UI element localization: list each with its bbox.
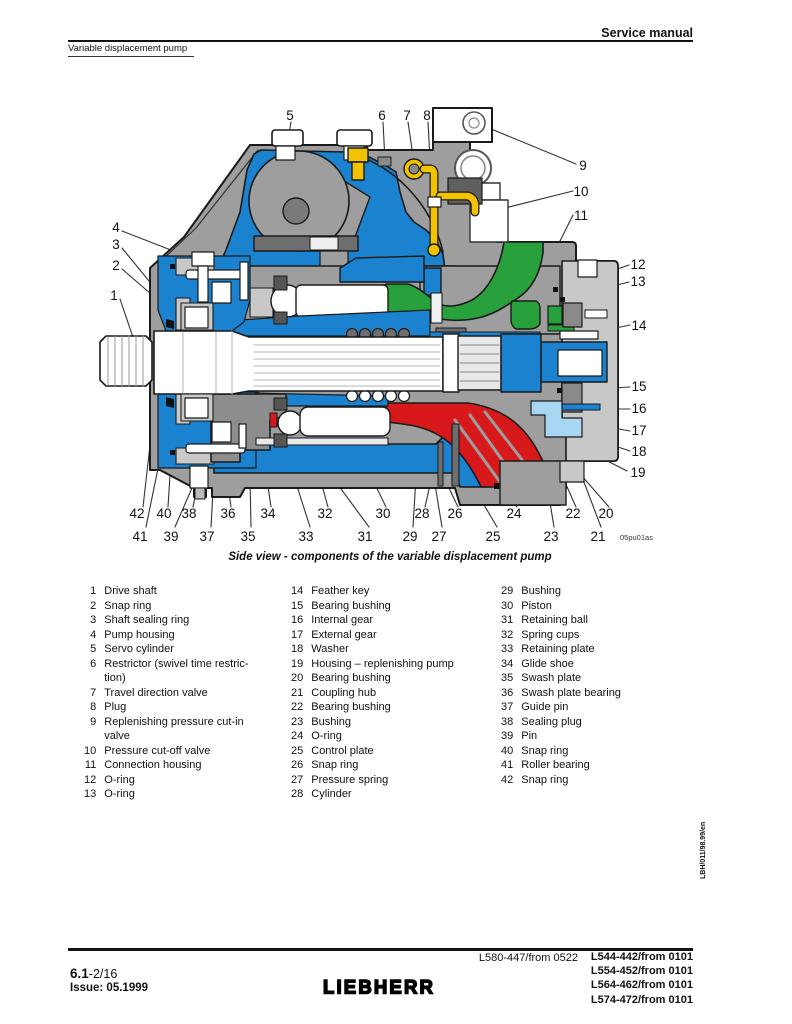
svg-text:8: 8 (423, 108, 431, 123)
svg-text:31: 31 (357, 529, 372, 544)
svg-text:33: 33 (298, 529, 313, 544)
svg-text:23: 23 (543, 529, 558, 544)
svg-text:1: 1 (110, 288, 118, 303)
svg-text:15: 15 (631, 379, 646, 394)
svg-text:32: 32 (317, 506, 332, 521)
svg-text:12: 12 (630, 257, 645, 272)
svg-text:17: 17 (631, 423, 646, 438)
svg-text:10: 10 (573, 184, 588, 199)
svg-text:05pu01as: 05pu01as (620, 533, 653, 542)
svg-text:25: 25 (485, 529, 500, 544)
svg-text:16: 16 (631, 401, 646, 416)
svg-text:40: 40 (156, 506, 171, 521)
svg-text:3: 3 (112, 237, 120, 252)
svg-text:9: 9 (579, 158, 587, 173)
svg-text:41: 41 (132, 529, 147, 544)
svg-text:6: 6 (378, 108, 386, 123)
svg-text:38: 38 (181, 506, 196, 521)
svg-text:18: 18 (631, 444, 646, 459)
svg-text:4: 4 (112, 220, 120, 235)
svg-text:13: 13 (630, 274, 645, 289)
svg-text:34: 34 (260, 506, 276, 521)
svg-text:28: 28 (414, 506, 429, 521)
svg-text:5: 5 (286, 108, 294, 123)
svg-text:24: 24 (506, 506, 522, 521)
svg-text:26: 26 (447, 506, 462, 521)
svg-text:36: 36 (220, 506, 235, 521)
svg-text:37: 37 (199, 529, 214, 544)
svg-text:42: 42 (129, 506, 144, 521)
svg-text:39: 39 (163, 529, 178, 544)
svg-text:27: 27 (431, 529, 446, 544)
svg-text:2: 2 (112, 258, 120, 273)
svg-text:19: 19 (630, 465, 645, 480)
svg-text:7: 7 (403, 108, 411, 123)
svg-text:30: 30 (375, 506, 390, 521)
svg-text:21: 21 (590, 529, 605, 544)
svg-text:35: 35 (240, 529, 255, 544)
svg-text:14: 14 (631, 318, 647, 333)
svg-text:20: 20 (598, 506, 613, 521)
svg-text:29: 29 (402, 529, 417, 544)
svg-text:11: 11 (574, 208, 588, 223)
svg-text:22: 22 (565, 506, 580, 521)
